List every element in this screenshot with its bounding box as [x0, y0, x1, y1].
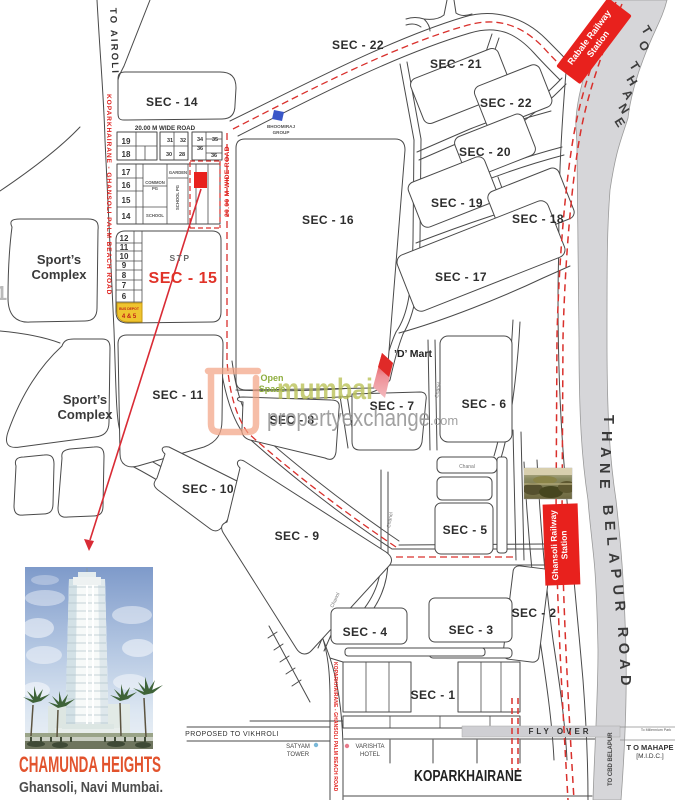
svg-text:14: 14	[122, 212, 131, 221]
svg-text:30: 30	[166, 152, 172, 158]
svg-text:34: 34	[197, 137, 204, 143]
svg-text:SEC - 2: SEC - 2	[512, 606, 557, 620]
svg-text:SEC - 19: SEC - 19	[431, 196, 483, 210]
svg-text:20.00 M WIDE ROAD: 20.00 M WIDE ROAD	[135, 125, 196, 132]
svg-text:SATYAM: SATYAM	[286, 744, 310, 750]
svg-text:U: U	[609, 584, 626, 596]
svg-text:SCHOOL PG: SCHOOL PG	[175, 185, 180, 210]
svg-text:SEC - 10: SEC - 10	[182, 482, 234, 496]
svg-text:SEC - 4: SEC - 4	[343, 625, 388, 639]
svg-text:To Millennium Park: To Millennium Park	[641, 728, 672, 732]
svg-text:A: A	[605, 552, 622, 564]
svg-text:O: O	[615, 643, 631, 655]
svg-text:T: T	[600, 415, 616, 424]
svg-text:[M.I.D.C.]: [M.I.D.C.]	[636, 753, 664, 760]
svg-text:D: D	[617, 675, 633, 685]
svg-text:CHAMUNDA HEIGHTS: CHAMUNDA HEIGHTS	[19, 752, 161, 777]
svg-text:11: 11	[120, 243, 129, 252]
svg-text:P: P	[607, 568, 624, 579]
svg-text:36: 36	[197, 146, 203, 152]
svg-text:9: 9	[122, 261, 127, 270]
svg-text:KOPARKHAIRANE - GHANSOLI PALM: KOPARKHAIRANE - GHANSOLI PALM BEACH ROAD	[105, 94, 112, 295]
svg-text:SEC - 11: SEC - 11	[152, 388, 203, 402]
svg-text:31: 31	[167, 138, 173, 144]
svg-text:SEC - 16: SEC - 16	[302, 213, 354, 227]
svg-text:PG: PG	[152, 186, 158, 191]
svg-text:7: 7	[122, 281, 127, 290]
svg-text:GROUP: GROUP	[273, 130, 290, 135]
svg-text:PROPOSED TO VIKHROLI: PROPOSED TO VIKHROLI	[185, 731, 279, 738]
svg-text:16: 16	[122, 181, 131, 190]
svg-text:mumbai: mumbai	[277, 373, 373, 406]
svg-text:TO CBD BELAPUR: TO CBD BELAPUR	[608, 732, 614, 786]
svg-text:KOPARKHAIRANE - GHANSOLI PALM: KOPARKHAIRANE - GHANSOLI PALM BEACH ROAD	[332, 662, 338, 792]
svg-text:SEC - 18: SEC - 18	[512, 212, 564, 226]
svg-text:SEC - 5: SEC - 5	[443, 523, 488, 537]
svg-text:4 & 5: 4 & 5	[122, 314, 137, 320]
svg-text:COMMON: COMMON	[145, 180, 165, 185]
svg-text:B: B	[599, 505, 615, 516]
svg-text:10: 10	[120, 252, 129, 261]
svg-text:’D’ Mart: ’D’ Mart	[394, 348, 432, 360]
svg-text:SEC - 3: SEC - 3	[449, 623, 494, 637]
svg-text:Complex: Complex	[58, 407, 114, 422]
svg-text:SEC - 22: SEC - 22	[332, 38, 384, 52]
svg-text:VARISHTA: VARISHTA	[355, 744, 384, 750]
svg-text:N: N	[596, 463, 612, 473]
svg-text:SEC - 1: SEC - 1	[411, 688, 456, 702]
svg-text:6: 6	[122, 292, 127, 301]
svg-text:T O MAHAPE: T O MAHAPE	[626, 743, 673, 752]
svg-text:FLY OVER: FLY OVER	[528, 727, 591, 736]
svg-text:Ghansoli, Navi Mumbai.: Ghansoli, Navi Mumbai.	[19, 780, 163, 796]
svg-text:A: A	[597, 447, 613, 458]
svg-text:.com: .com	[430, 413, 458, 428]
svg-text:STP: STP	[169, 253, 190, 263]
svg-text:Complex: Complex	[32, 267, 88, 282]
svg-text:SEC - 6: SEC - 6	[462, 397, 507, 411]
svg-text:R: R	[611, 600, 628, 612]
svg-text:HOTEL: HOTEL	[360, 752, 381, 758]
svg-text:1: 1	[0, 283, 7, 305]
svg-text:36: 36	[211, 153, 217, 159]
svg-text:E: E	[596, 479, 612, 489]
svg-text:15: 15	[122, 196, 131, 205]
svg-text:propertyexchange: propertyexchange	[267, 405, 430, 432]
svg-text:SEC - 17: SEC - 17	[435, 270, 487, 284]
svg-text:SEC - 9: SEC - 9	[275, 529, 320, 543]
svg-text:Chanal: Chanal	[459, 464, 475, 470]
svg-text:Sport’s: Sport’s	[37, 252, 81, 267]
svg-text:32: 32	[180, 138, 186, 144]
svg-text:17: 17	[122, 168, 131, 177]
svg-text:SEC - 15: SEC - 15	[149, 270, 218, 287]
svg-text:Sport’s: Sport’s	[63, 392, 107, 407]
svg-text:KOPARKHAIRANE: KOPARKHAIRANE	[414, 768, 522, 785]
svg-text:TO AIROLI: TO AIROLI	[107, 8, 120, 76]
svg-text:R: R	[614, 627, 630, 639]
svg-text:L: L	[603, 536, 619, 546]
svg-text:H: H	[598, 431, 614, 441]
svg-text:18: 18	[122, 150, 131, 159]
svg-text:SEC - 14: SEC - 14	[146, 95, 198, 109]
svg-text:SCHOOL: SCHOOL	[146, 213, 164, 218]
svg-text:35: 35	[212, 137, 218, 143]
svg-text:E: E	[601, 521, 617, 532]
svg-text:Station: Station	[558, 530, 569, 559]
svg-text:A: A	[616, 659, 632, 670]
svg-text:12: 12	[120, 234, 129, 243]
svg-text:GARDEN: GARDEN	[169, 170, 187, 175]
svg-text:8: 8	[122, 271, 127, 280]
svg-text:TOWER: TOWER	[287, 752, 310, 758]
svg-text:BHOOMIRAJ: BHOOMIRAJ	[267, 124, 296, 129]
svg-text:SEC - 20: SEC - 20	[459, 145, 511, 159]
svg-text:BUS DEPOT: BUS DEPOT	[119, 307, 140, 311]
svg-text:20.00 M WIDE ROAD: 20.00 M WIDE ROAD	[224, 146, 231, 217]
svg-text:SEC - 22: SEC - 22	[480, 96, 532, 110]
svg-text:SEC - 21: SEC - 21	[430, 57, 482, 71]
svg-text:28: 28	[179, 152, 185, 158]
svg-text:19: 19	[122, 137, 131, 146]
